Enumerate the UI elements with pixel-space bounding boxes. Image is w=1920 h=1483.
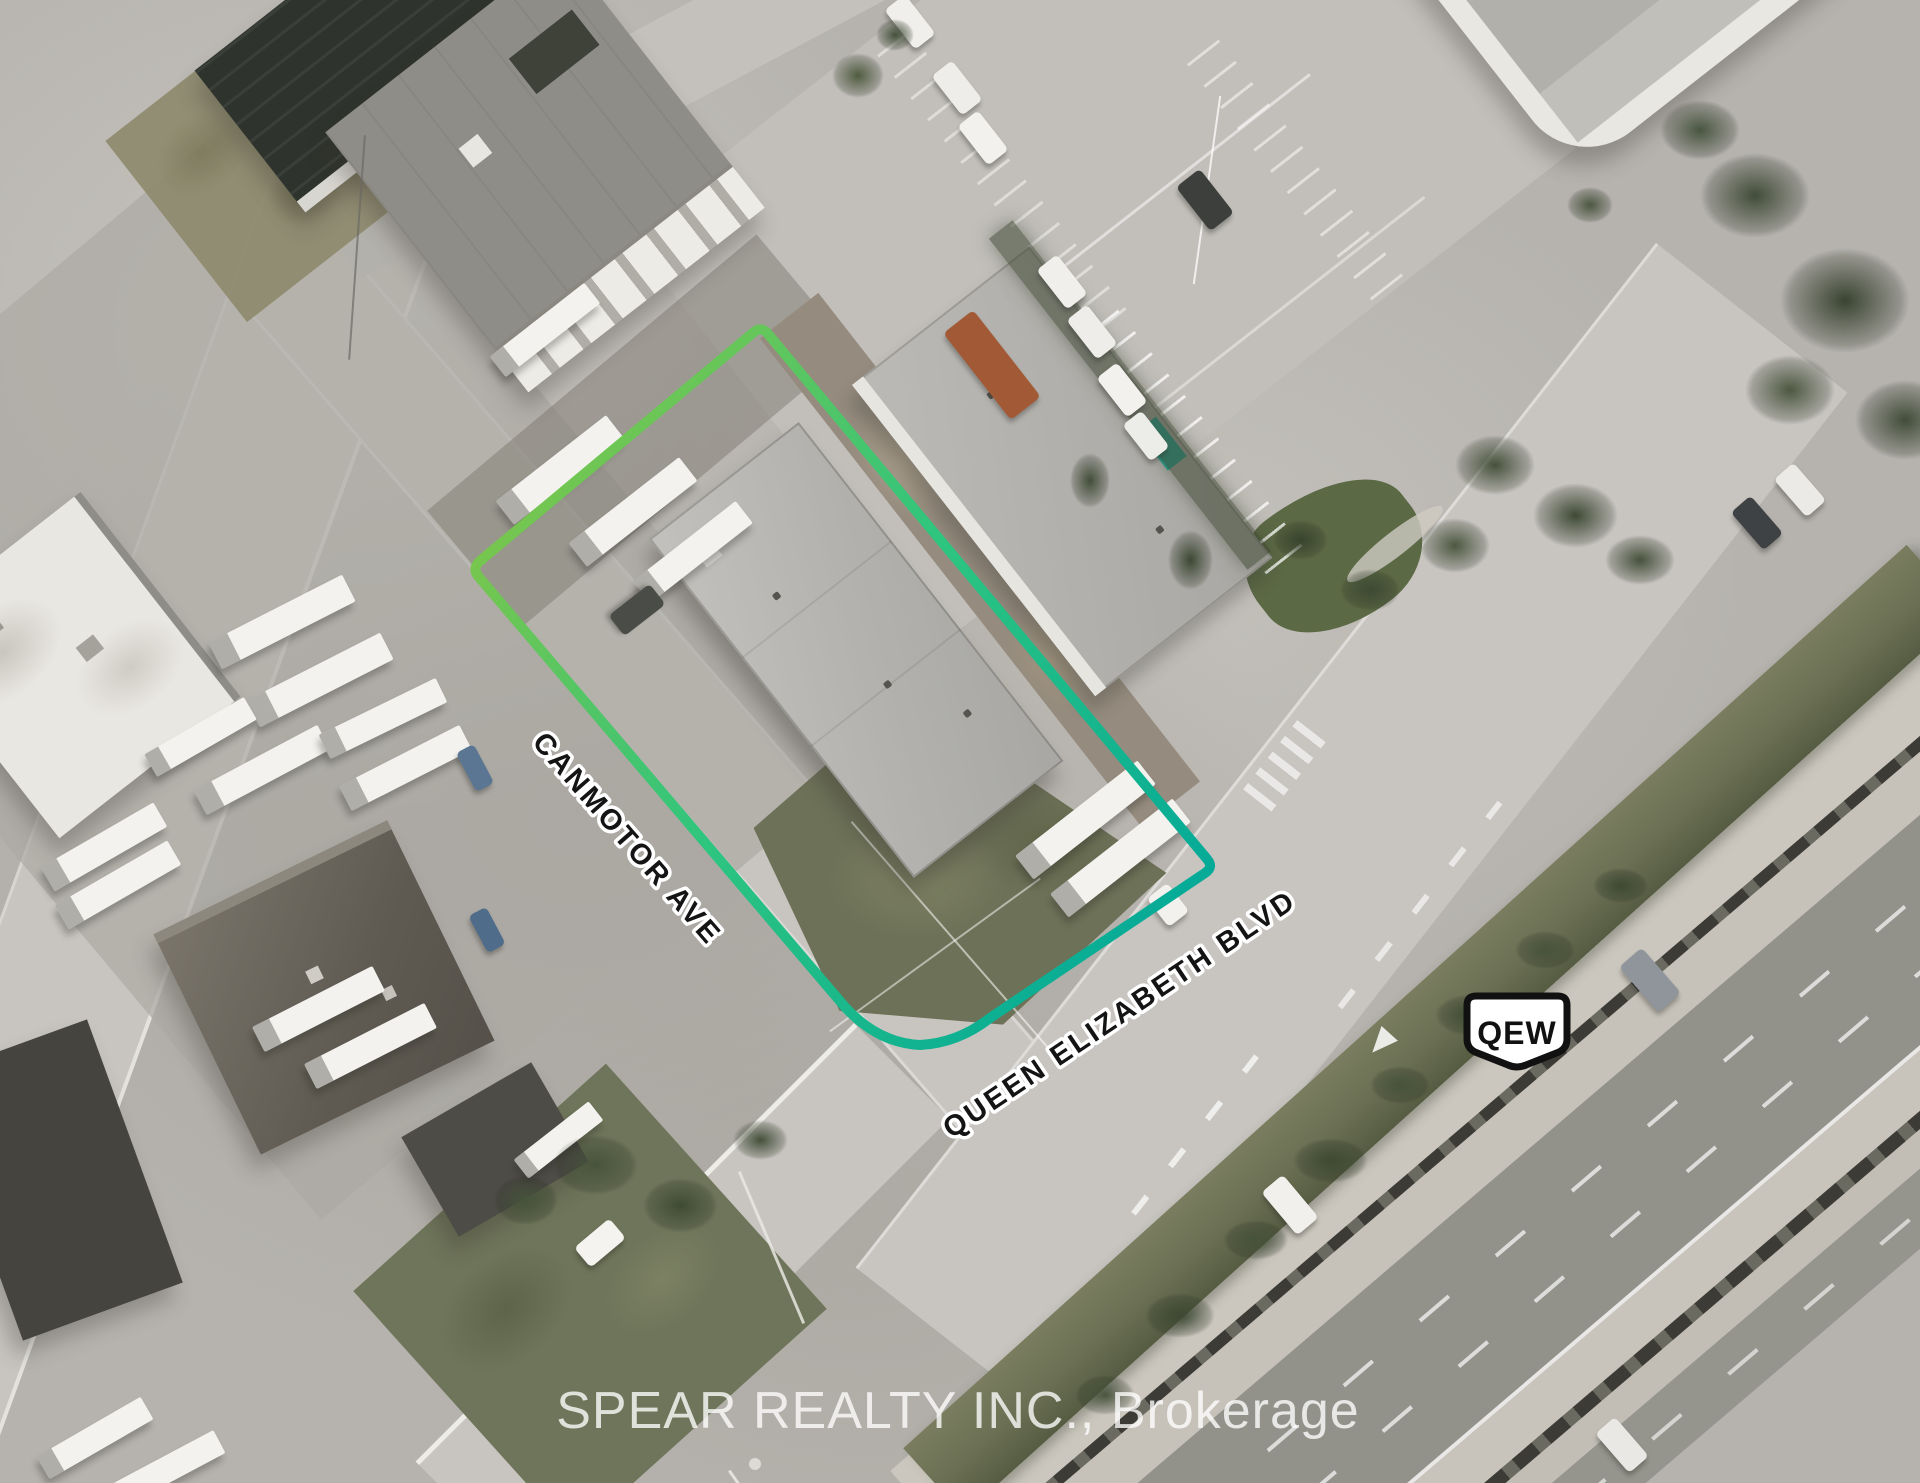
aerial-map: CANMOTOR AVE QUEEN ELIZABETH BLVD QEW SP…	[0, 0, 1920, 1483]
shield-label: QEW	[1477, 1015, 1556, 1051]
watermark: SPEAR REALTY INC., Brokerage	[556, 1382, 1359, 1440]
property-outline	[475, 329, 1210, 1045]
qew-highway-shield: QEW	[1467, 996, 1567, 1067]
annotation-overlay: CANMOTOR AVE QUEEN ELIZABETH BLVD QEW SP…	[0, 0, 1920, 1483]
